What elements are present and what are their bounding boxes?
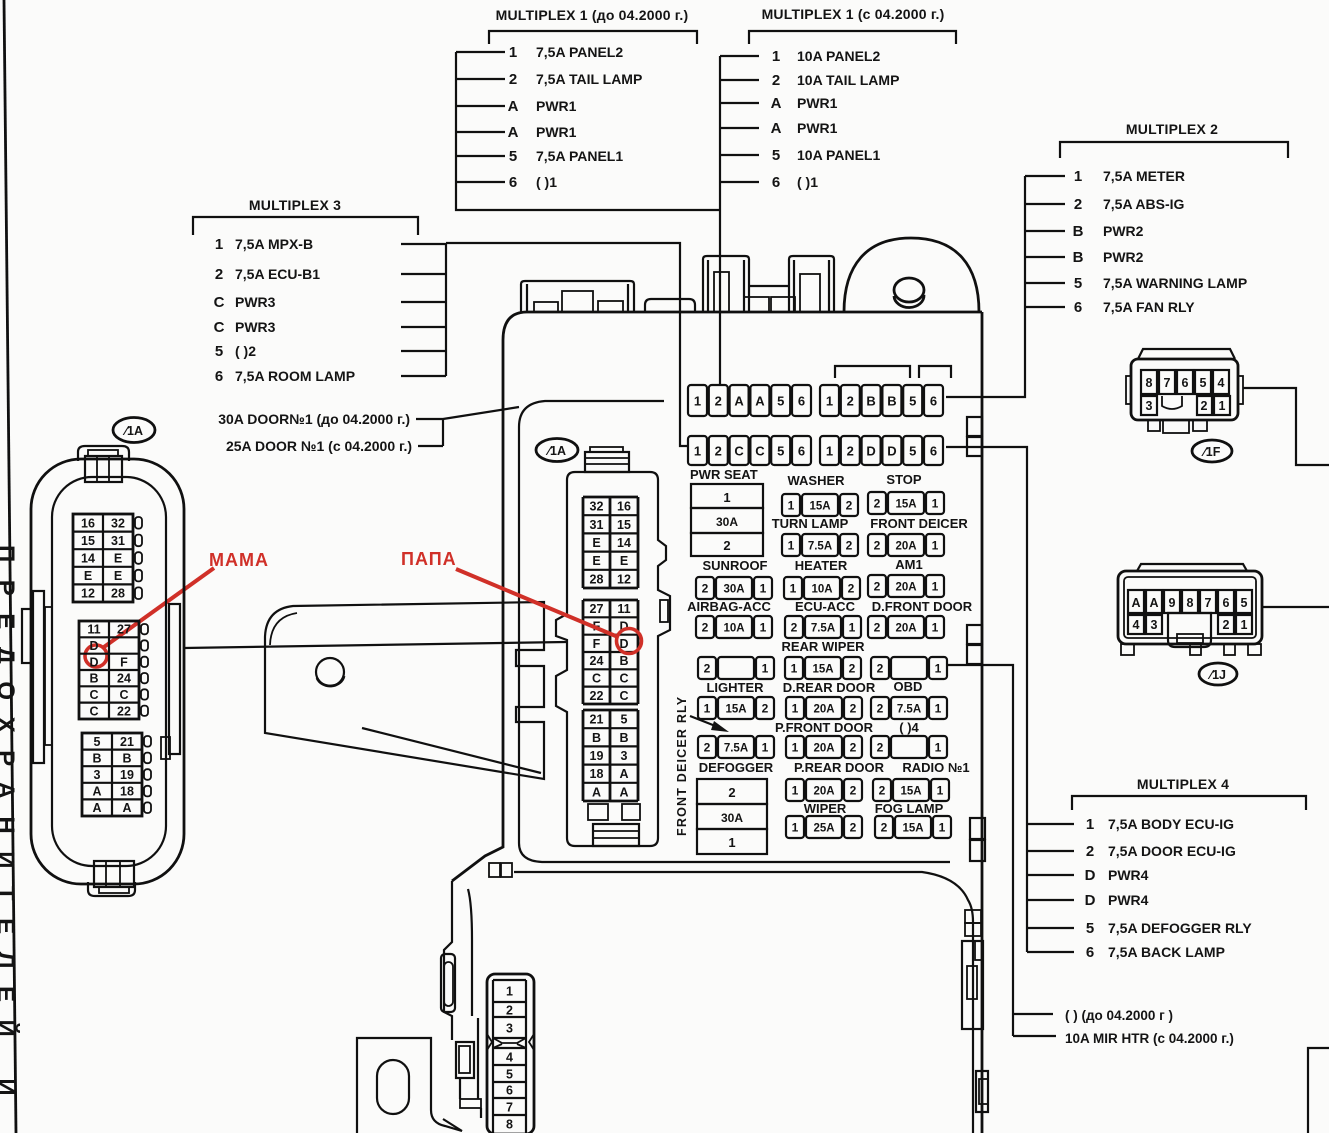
svg-text:C: C (89, 688, 98, 702)
svg-text:C: C (89, 704, 98, 718)
svg-text:6: 6 (930, 444, 937, 459)
svg-text:B: B (122, 751, 131, 765)
svg-text:2: 2 (509, 71, 517, 88)
svg-text:TURN LAMP: TURN LAMP (772, 516, 849, 531)
svg-text:1: 1 (939, 821, 946, 835)
svg-text:HEATER: HEATER (795, 558, 848, 573)
svg-text:5: 5 (1074, 275, 1082, 292)
svg-text:MULTIPLEX 1 (с 04.2000 г.): MULTIPLEX 1 (с 04.2000 г.) (762, 6, 945, 22)
svg-text:27: 27 (590, 602, 604, 616)
svg-text:30A DOOR№1 (до 04.2000 г.): 30A DOOR№1 (до 04.2000 г.) (218, 411, 410, 427)
svg-text:15A: 15A (725, 704, 746, 716)
svg-text:ECU-ACC: ECU-ACC (795, 599, 856, 614)
svg-text:15A: 15A (809, 501, 830, 513)
svg-text:6: 6 (1086, 944, 1094, 961)
svg-text:2: 2 (881, 821, 888, 835)
svg-text:20A: 20A (895, 541, 916, 553)
svg-text:5: 5 (215, 343, 223, 360)
svg-text:PWR1: PWR1 (536, 98, 577, 114)
svg-text:1: 1 (935, 702, 942, 716)
svg-text:PWR1: PWR1 (797, 120, 838, 136)
svg-text:C: C (619, 689, 628, 703)
svg-text:7.5A: 7.5A (811, 623, 835, 635)
svg-text:AM1: AM1 (895, 557, 922, 572)
svg-text:C: C (214, 294, 225, 311)
svg-text:32: 32 (590, 500, 604, 514)
svg-text:STOP: STOP (886, 472, 921, 487)
svg-text:7,5A TAIL LAMP: 7,5A TAIL LAMP (536, 71, 642, 87)
svg-text:PWR3: PWR3 (235, 294, 276, 310)
svg-text:28: 28 (590, 572, 604, 586)
svg-text:21: 21 (590, 713, 604, 727)
svg-text:5: 5 (1241, 596, 1248, 610)
svg-text:B: B (592, 731, 601, 745)
svg-text:2: 2 (762, 702, 769, 716)
svg-text:⁄1A: ⁄1A (545, 444, 566, 458)
svg-text:C: C (619, 671, 628, 685)
svg-text:18: 18 (590, 767, 604, 781)
svg-text:7,5A PANEL2: 7,5A PANEL2 (536, 44, 623, 60)
svg-text:15A: 15A (812, 664, 833, 676)
svg-text:FRONT DEICER: FRONT DEICER (870, 516, 968, 531)
svg-text:2: 2 (772, 72, 780, 89)
svg-text:( )2: ( )2 (235, 343, 256, 359)
svg-text:D: D (89, 639, 98, 653)
svg-text:2: 2 (850, 741, 857, 755)
svg-text:5: 5 (94, 735, 101, 749)
svg-text:8: 8 (506, 1118, 513, 1132)
svg-text:20A: 20A (813, 743, 834, 755)
svg-text:10A MIR HTR (с 04.2000 г.): 10A MIR HTR (с 04.2000 г.) (1065, 1031, 1234, 1046)
svg-text:МАМА: МАМА (209, 550, 269, 570)
svg-text:1: 1 (762, 662, 769, 676)
svg-text:12: 12 (81, 587, 95, 601)
svg-text:B: B (866, 394, 875, 409)
svg-text:10A: 10A (811, 584, 832, 596)
svg-text:PWR1: PWR1 (797, 95, 838, 111)
svg-text:15: 15 (81, 534, 95, 548)
svg-text:2: 2 (704, 741, 711, 755)
svg-text:7,5A ROOM LAMP: 7,5A ROOM LAMP (235, 368, 355, 384)
svg-text:A: A (122, 801, 131, 815)
svg-text:E: E (620, 554, 628, 568)
svg-text:1: 1 (792, 741, 799, 755)
svg-text:30A: 30A (723, 584, 744, 596)
svg-text:10A: 10A (723, 623, 744, 635)
svg-text:10A TAIL LAMP: 10A TAIL LAMP (797, 72, 899, 88)
svg-text:31: 31 (111, 534, 125, 548)
svg-text:E: E (592, 536, 600, 550)
svg-text:2: 2 (1074, 196, 1082, 213)
svg-text:C: C (119, 688, 128, 702)
svg-text:1: 1 (1086, 816, 1094, 833)
svg-text:1: 1 (790, 582, 797, 596)
svg-text:20A: 20A (813, 704, 834, 716)
svg-text:1: 1 (792, 702, 799, 716)
svg-text:6: 6 (506, 1084, 513, 1098)
svg-text:15: 15 (617, 518, 631, 532)
svg-text:1: 1 (792, 821, 799, 835)
svg-text:1: 1 (932, 539, 939, 553)
svg-text:7,5A DEFOGGER RLY: 7,5A DEFOGGER RLY (1108, 920, 1252, 936)
svg-text:F: F (120, 655, 128, 669)
svg-text:D.REAR DOOR: D.REAR DOOR (783, 680, 876, 695)
svg-text:22: 22 (590, 689, 604, 703)
svg-text:PWR1: PWR1 (536, 124, 577, 140)
svg-text:2: 2 (715, 444, 722, 459)
svg-text:B: B (887, 394, 896, 409)
svg-text:7,5A BODY ECU-IG: 7,5A BODY ECU-IG (1108, 816, 1234, 832)
svg-text:6: 6 (1182, 376, 1189, 390)
svg-text:5: 5 (506, 1068, 513, 1082)
svg-text:A: A (619, 767, 628, 781)
svg-text:2: 2 (874, 580, 881, 594)
svg-text:1: 1 (932, 497, 939, 511)
svg-text:E: E (114, 569, 122, 583)
svg-text:1: 1 (509, 44, 517, 61)
svg-text:2: 2 (847, 444, 854, 459)
svg-text:1: 1 (1219, 399, 1226, 413)
svg-text:C: C (214, 319, 225, 336)
svg-text:25A: 25A (813, 823, 834, 835)
svg-text:1: 1 (762, 741, 769, 755)
svg-text:6: 6 (798, 444, 805, 459)
svg-text:1: 1 (826, 394, 833, 409)
svg-text:2: 2 (848, 582, 855, 596)
svg-text:A: A (771, 120, 782, 137)
svg-text:7,5A MPX-B: 7,5A MPX-B (235, 236, 313, 252)
svg-text:PWR SEAT: PWR SEAT (690, 467, 758, 482)
svg-text:MULTIPLEX 3: MULTIPLEX 3 (249, 197, 341, 213)
svg-text:7,5A PANEL1: 7,5A PANEL1 (536, 148, 623, 164)
svg-text:1: 1 (704, 702, 711, 716)
svg-text:( )1: ( )1 (797, 174, 818, 190)
svg-text:P.REAR DOOR: P.REAR DOOR (794, 760, 885, 775)
svg-text:5: 5 (777, 394, 784, 409)
svg-text:B: B (92, 751, 101, 765)
svg-text:1: 1 (694, 394, 701, 409)
svg-text:20A: 20A (895, 623, 916, 635)
svg-text:WIPER: WIPER (804, 801, 847, 816)
svg-text:1: 1 (935, 662, 942, 676)
svg-text:A: A (1149, 596, 1158, 610)
svg-text:2: 2 (715, 394, 722, 409)
svg-text:3: 3 (94, 768, 101, 782)
svg-text:MULTIPLEX 1 (до 04.2000 г.): MULTIPLEX 1 (до 04.2000 г.) (496, 7, 689, 23)
svg-text:C: C (592, 671, 601, 685)
svg-text:9: 9 (1169, 596, 1176, 610)
svg-text:C: C (734, 444, 744, 459)
svg-text:2: 2 (846, 499, 853, 513)
svg-text:B: B (619, 654, 628, 668)
svg-text:MULTIPLEX 2: MULTIPLEX 2 (1126, 121, 1218, 137)
svg-text:15A: 15A (902, 823, 923, 835)
svg-text:D: D (887, 444, 896, 459)
svg-text:21: 21 (120, 735, 134, 749)
svg-text:18: 18 (120, 785, 134, 799)
svg-text:11: 11 (87, 623, 100, 637)
svg-text:8: 8 (1187, 596, 1194, 610)
svg-text:30A: 30A (721, 811, 743, 825)
svg-text:1: 1 (788, 499, 795, 513)
svg-text:2: 2 (850, 784, 857, 798)
svg-text:REAR WIPER: REAR WIPER (781, 639, 865, 654)
svg-text:B: B (1073, 223, 1084, 240)
svg-text:5: 5 (777, 444, 784, 459)
svg-text:2: 2 (850, 702, 857, 716)
svg-text:FRONT DEICER RLY: FRONT DEICER RLY (675, 696, 689, 836)
svg-text:D: D (89, 655, 98, 669)
svg-text:2: 2 (874, 539, 881, 553)
svg-text:6: 6 (1074, 299, 1082, 316)
svg-text:7.5A: 7.5A (724, 743, 748, 755)
svg-text:2: 2 (847, 394, 854, 409)
svg-text:10A PANEL1: 10A PANEL1 (797, 147, 880, 163)
svg-text:A: A (734, 394, 744, 409)
svg-text:A: A (92, 785, 101, 799)
svg-text:20A: 20A (895, 582, 916, 594)
svg-text:D: D (1085, 892, 1096, 909)
svg-text:25A DOOR №1 (с 04.2000 г.): 25A DOOR №1 (с 04.2000 г.) (226, 438, 412, 454)
svg-text:7,5A ECU-B1: 7,5A ECU-B1 (235, 266, 320, 282)
svg-text:E: E (114, 552, 122, 566)
svg-text:SUNROOF: SUNROOF (703, 558, 768, 573)
svg-text:6: 6 (772, 174, 780, 191)
svg-text:15A: 15A (895, 499, 916, 511)
svg-text:DEFOGGER: DEFOGGER (699, 760, 774, 775)
svg-text:2: 2 (849, 662, 856, 676)
svg-text:5: 5 (1086, 920, 1094, 937)
svg-text:2: 2 (877, 741, 884, 755)
svg-text:2: 2 (704, 662, 711, 676)
svg-text:B: B (89, 672, 98, 686)
svg-text:2: 2 (215, 266, 223, 283)
svg-text:10A PANEL2: 10A PANEL2 (797, 48, 880, 64)
svg-text:7,5A FAN RLY: 7,5A FAN RLY (1103, 299, 1195, 315)
svg-text:A: A (1131, 596, 1140, 610)
svg-text:2: 2 (723, 538, 730, 553)
svg-text:A: A (619, 785, 628, 799)
svg-text:15A: 15A (900, 786, 921, 798)
svg-text:D: D (866, 444, 875, 459)
svg-text:PWR4: PWR4 (1108, 892, 1149, 908)
svg-text:2: 2 (1201, 399, 1208, 413)
svg-text:1: 1 (760, 582, 767, 596)
svg-text:ПРЕДОХРАНИТЕЛЕЙ И: ПРЕДОХРАНИТЕЛЕЙ И (0, 545, 20, 1113)
svg-text:16: 16 (81, 516, 95, 530)
svg-text:5: 5 (772, 147, 780, 164)
svg-text:4: 4 (1218, 376, 1225, 390)
svg-text:31: 31 (590, 518, 604, 532)
svg-text:7,5A METER: 7,5A METER (1103, 168, 1185, 184)
svg-text:4: 4 (506, 1051, 513, 1065)
svg-text:1: 1 (788, 539, 795, 553)
svg-text:14: 14 (81, 552, 95, 566)
svg-text:PWR2: PWR2 (1103, 249, 1144, 265)
svg-text:2: 2 (702, 621, 709, 635)
svg-text:1: 1 (935, 741, 942, 755)
svg-text:LIGHTER: LIGHTER (706, 680, 764, 695)
svg-text:11: 11 (617, 602, 630, 616)
svg-text:1: 1 (506, 985, 513, 999)
svg-text:7: 7 (1205, 596, 1212, 610)
svg-text:7,5A BACK LAMP: 7,5A BACK LAMP (1108, 944, 1225, 960)
svg-text:14: 14 (617, 536, 631, 550)
svg-text:D.FRONT DOOR: D.FRONT DOOR (872, 599, 973, 614)
svg-text:2: 2 (874, 497, 881, 511)
svg-text:1: 1 (791, 662, 798, 676)
svg-text:A: A (771, 95, 782, 112)
svg-text:3: 3 (621, 749, 628, 763)
svg-text:20A: 20A (813, 786, 834, 798)
svg-text:7.5A: 7.5A (808, 541, 832, 553)
svg-text:F: F (593, 637, 601, 651)
svg-text:C: C (755, 444, 765, 459)
svg-text:22: 22 (117, 704, 131, 718)
svg-text:28: 28 (111, 587, 125, 601)
svg-text:1: 1 (826, 444, 833, 459)
svg-text:RADIO №1: RADIO №1 (902, 760, 969, 775)
svg-text:2: 2 (1223, 618, 1230, 632)
svg-text:1: 1 (932, 580, 939, 594)
svg-text:30A: 30A (716, 515, 738, 529)
svg-text:3: 3 (1146, 399, 1153, 413)
svg-text:1: 1 (1241, 618, 1248, 632)
svg-text:FOG LAMP: FOG LAMP (875, 801, 944, 816)
svg-text:A: A (755, 394, 765, 409)
svg-text:6: 6 (215, 368, 223, 385)
svg-text:24: 24 (590, 654, 604, 668)
svg-text:7,5A ABS-IG: 7,5A ABS-IG (1103, 196, 1185, 212)
svg-text:2: 2 (877, 702, 884, 716)
svg-text:7: 7 (506, 1101, 513, 1115)
svg-text:PWR3: PWR3 (235, 319, 276, 335)
svg-text:A: A (592, 785, 601, 799)
svg-text:7,5A WARNING LAMP: 7,5A WARNING LAMP (1103, 275, 1247, 291)
svg-text:8: 8 (1146, 376, 1153, 390)
svg-text:7,5A DOOR ECU-IG: 7,5A DOOR ECU-IG (1108, 843, 1236, 859)
svg-text:7.5A: 7.5A (897, 704, 921, 716)
svg-text:5: 5 (509, 148, 517, 165)
svg-text:24: 24 (117, 672, 131, 686)
svg-text:2: 2 (1086, 843, 1094, 860)
svg-text:1: 1 (932, 621, 939, 635)
svg-text:WASHER: WASHER (787, 473, 845, 488)
svg-text:1: 1 (792, 784, 799, 798)
svg-text:PWR2: PWR2 (1103, 223, 1144, 239)
svg-text:B: B (1073, 249, 1084, 266)
svg-text:AIRBAG-ACC: AIRBAG-ACC (687, 599, 771, 614)
svg-text:4: 4 (1133, 618, 1140, 632)
svg-text:27: 27 (117, 623, 131, 637)
svg-text:ПАПА: ПАПА (401, 549, 457, 569)
svg-text:2: 2 (728, 785, 735, 800)
svg-text:3: 3 (1151, 618, 1158, 632)
svg-text:2: 2 (877, 662, 884, 676)
svg-text:E: E (592, 554, 600, 568)
svg-text:D: D (1085, 867, 1096, 884)
svg-text:1: 1 (694, 444, 701, 459)
svg-text:PWR4: PWR4 (1108, 867, 1149, 883)
svg-text:( )1: ( )1 (536, 174, 557, 190)
svg-text:12: 12 (617, 572, 631, 586)
svg-text:2: 2 (702, 582, 709, 596)
svg-text:A: A (92, 801, 101, 815)
svg-text:2: 2 (506, 1004, 513, 1018)
svg-text:A: A (508, 98, 519, 115)
svg-text:6: 6 (509, 174, 517, 191)
svg-text:5: 5 (909, 394, 916, 409)
svg-text:( )4: ( )4 (899, 720, 919, 735)
svg-text:6: 6 (798, 394, 805, 409)
svg-text:A: A (508, 124, 519, 141)
svg-text:⁄1F: ⁄1F (1201, 445, 1221, 459)
svg-text:6: 6 (930, 394, 937, 409)
svg-text:2: 2 (879, 784, 886, 798)
svg-text:5: 5 (621, 713, 628, 727)
svg-text:2: 2 (850, 821, 857, 835)
svg-text:2: 2 (846, 539, 853, 553)
svg-text:OBD: OBD (894, 679, 923, 694)
svg-text:1: 1 (1074, 168, 1082, 185)
svg-text:1: 1 (215, 236, 223, 253)
svg-text:32: 32 (111, 516, 125, 530)
svg-text:1: 1 (728, 835, 735, 850)
svg-text:MULTIPLEX 4: MULTIPLEX 4 (1137, 776, 1229, 792)
svg-text:B: B (619, 731, 628, 745)
svg-text:⁄1J: ⁄1J (1207, 668, 1226, 682)
svg-text:2: 2 (874, 621, 881, 635)
svg-text:19: 19 (120, 768, 134, 782)
svg-text:1: 1 (937, 784, 944, 798)
svg-text:5: 5 (909, 444, 916, 459)
svg-text:6: 6 (1223, 596, 1230, 610)
svg-text:19: 19 (590, 749, 604, 763)
svg-text:E: E (84, 569, 92, 583)
svg-text:16: 16 (617, 500, 631, 514)
svg-text:⁄1A: ⁄1A (122, 424, 143, 438)
svg-text:P.FRONT DOOR: P.FRONT DOOR (775, 720, 874, 735)
svg-text:1: 1 (760, 621, 767, 635)
svg-text:3: 3 (506, 1022, 513, 1036)
svg-text:1: 1 (772, 48, 780, 65)
svg-text:7: 7 (1164, 376, 1171, 390)
svg-text:5: 5 (1200, 376, 1207, 390)
svg-text:1: 1 (723, 490, 730, 505)
svg-text:( ) (до 04.2000 г ): ( ) (до 04.2000 г ) (1065, 1008, 1173, 1023)
svg-text:2: 2 (791, 621, 798, 635)
svg-text:1: 1 (849, 621, 856, 635)
